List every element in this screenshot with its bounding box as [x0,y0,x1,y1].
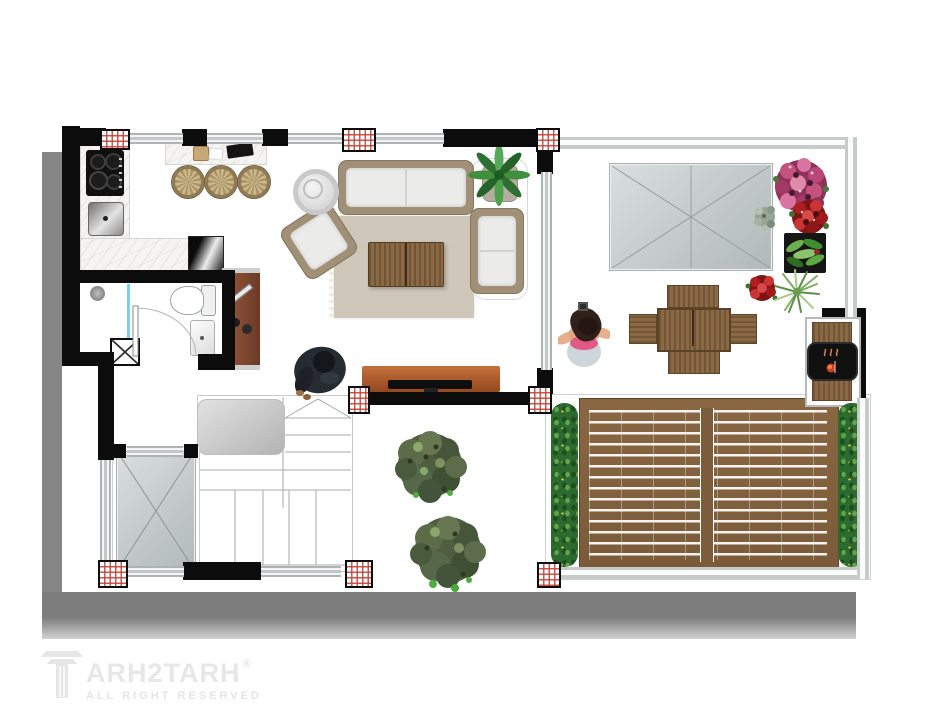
bottom-wall-segment [183,562,261,580]
dining-chair-top [667,285,719,308]
shower-head [90,286,105,301]
bbq-side-table-top [812,322,852,343]
bar-stool [238,166,270,198]
top-wall-pier [182,129,207,146]
terrace-railing-right [845,137,857,317]
brand-name: ARH2TARH [86,658,241,689]
column [100,129,130,150]
top-wall-pier [262,129,288,146]
top-wall-solid [443,129,538,147]
bottom-window [124,566,184,577]
top-window [126,133,183,144]
skylight-left-window [100,458,111,562]
spiky-plant-pot [773,266,821,314]
cooktop-knobs [119,158,122,188]
kitchen-counter-horizontal [80,238,192,274]
armchair-cushion [289,211,350,272]
dining-chair-left [629,314,657,344]
brand-tagline: ALL RIGHT RESERVED [86,690,262,702]
column [342,128,376,152]
bar-stool [205,166,237,198]
beanbag-with-person [290,338,350,400]
garden-bush [403,508,493,594]
skylight-top-window [127,446,183,457]
burner [90,154,106,170]
potted-palm [466,146,530,210]
paper-sheets [208,147,223,160]
sofa [338,160,474,215]
bbq-side-table-bottom [812,378,852,401]
dining-table [657,308,731,352]
bbq-grill [807,342,858,381]
skylight-void-panel [117,452,195,570]
dining-chair-right [728,314,757,344]
column [98,560,128,588]
bathroom-top-wall [80,270,235,283]
garden-bush [388,423,472,507]
cutting-board [193,146,209,161]
deck-railing-bottom [545,567,869,579]
column [528,386,552,414]
living-terrace-glass-door [541,172,552,370]
round-table-ring [303,179,323,199]
column [348,386,370,414]
column-logo-icon [40,644,84,700]
top-window [288,133,343,144]
plan-shadow-left [42,152,62,594]
stairhall-left-wall [98,360,114,460]
living-garden-wall [352,392,545,405]
bar-stool [172,166,204,198]
bathroom-door [130,302,202,360]
hedge-planter-left [551,403,578,567]
bottom-window [261,566,341,577]
column [537,562,561,588]
skylight-corner-block [184,444,198,458]
bathroom-bottom-wall-right [198,354,235,370]
column [536,128,560,152]
plan-shadow-bottom [42,592,856,639]
top-window [207,133,263,144]
skylight-corner-block [112,444,126,458]
sink-drain [103,216,108,221]
deck-railing-right [857,398,869,579]
kitchen-sink [88,202,124,236]
column [345,560,373,588]
cabinet-decor-bowl [242,324,252,334]
sofa-cushion-divider [405,170,407,206]
floor-plan-canvas: ARH2TARH ® ALL RIGHT RESERVED [0,0,936,720]
round-side-table [293,169,339,215]
coffee-table [368,242,444,287]
deck-center-divider [700,408,714,562]
dining-table-gap [692,310,694,346]
table-center-gap [405,243,407,286]
left-exterior-wall [62,126,80,366]
floor-mat [197,399,285,455]
top-window [371,133,444,144]
cooktop [86,150,124,196]
chaise-cushion-divider [480,250,514,252]
dining-chair-bottom [668,350,720,374]
flower-pot-gray [752,202,778,232]
standing-person [558,300,610,372]
watermark-logo: ARH2TARH ® ALL RIGHT RESERVED [40,644,262,702]
skylight-canopy [610,164,772,270]
registered-mark: ® [243,658,251,670]
chaise [470,208,524,294]
terrace-railing-top [554,137,848,149]
